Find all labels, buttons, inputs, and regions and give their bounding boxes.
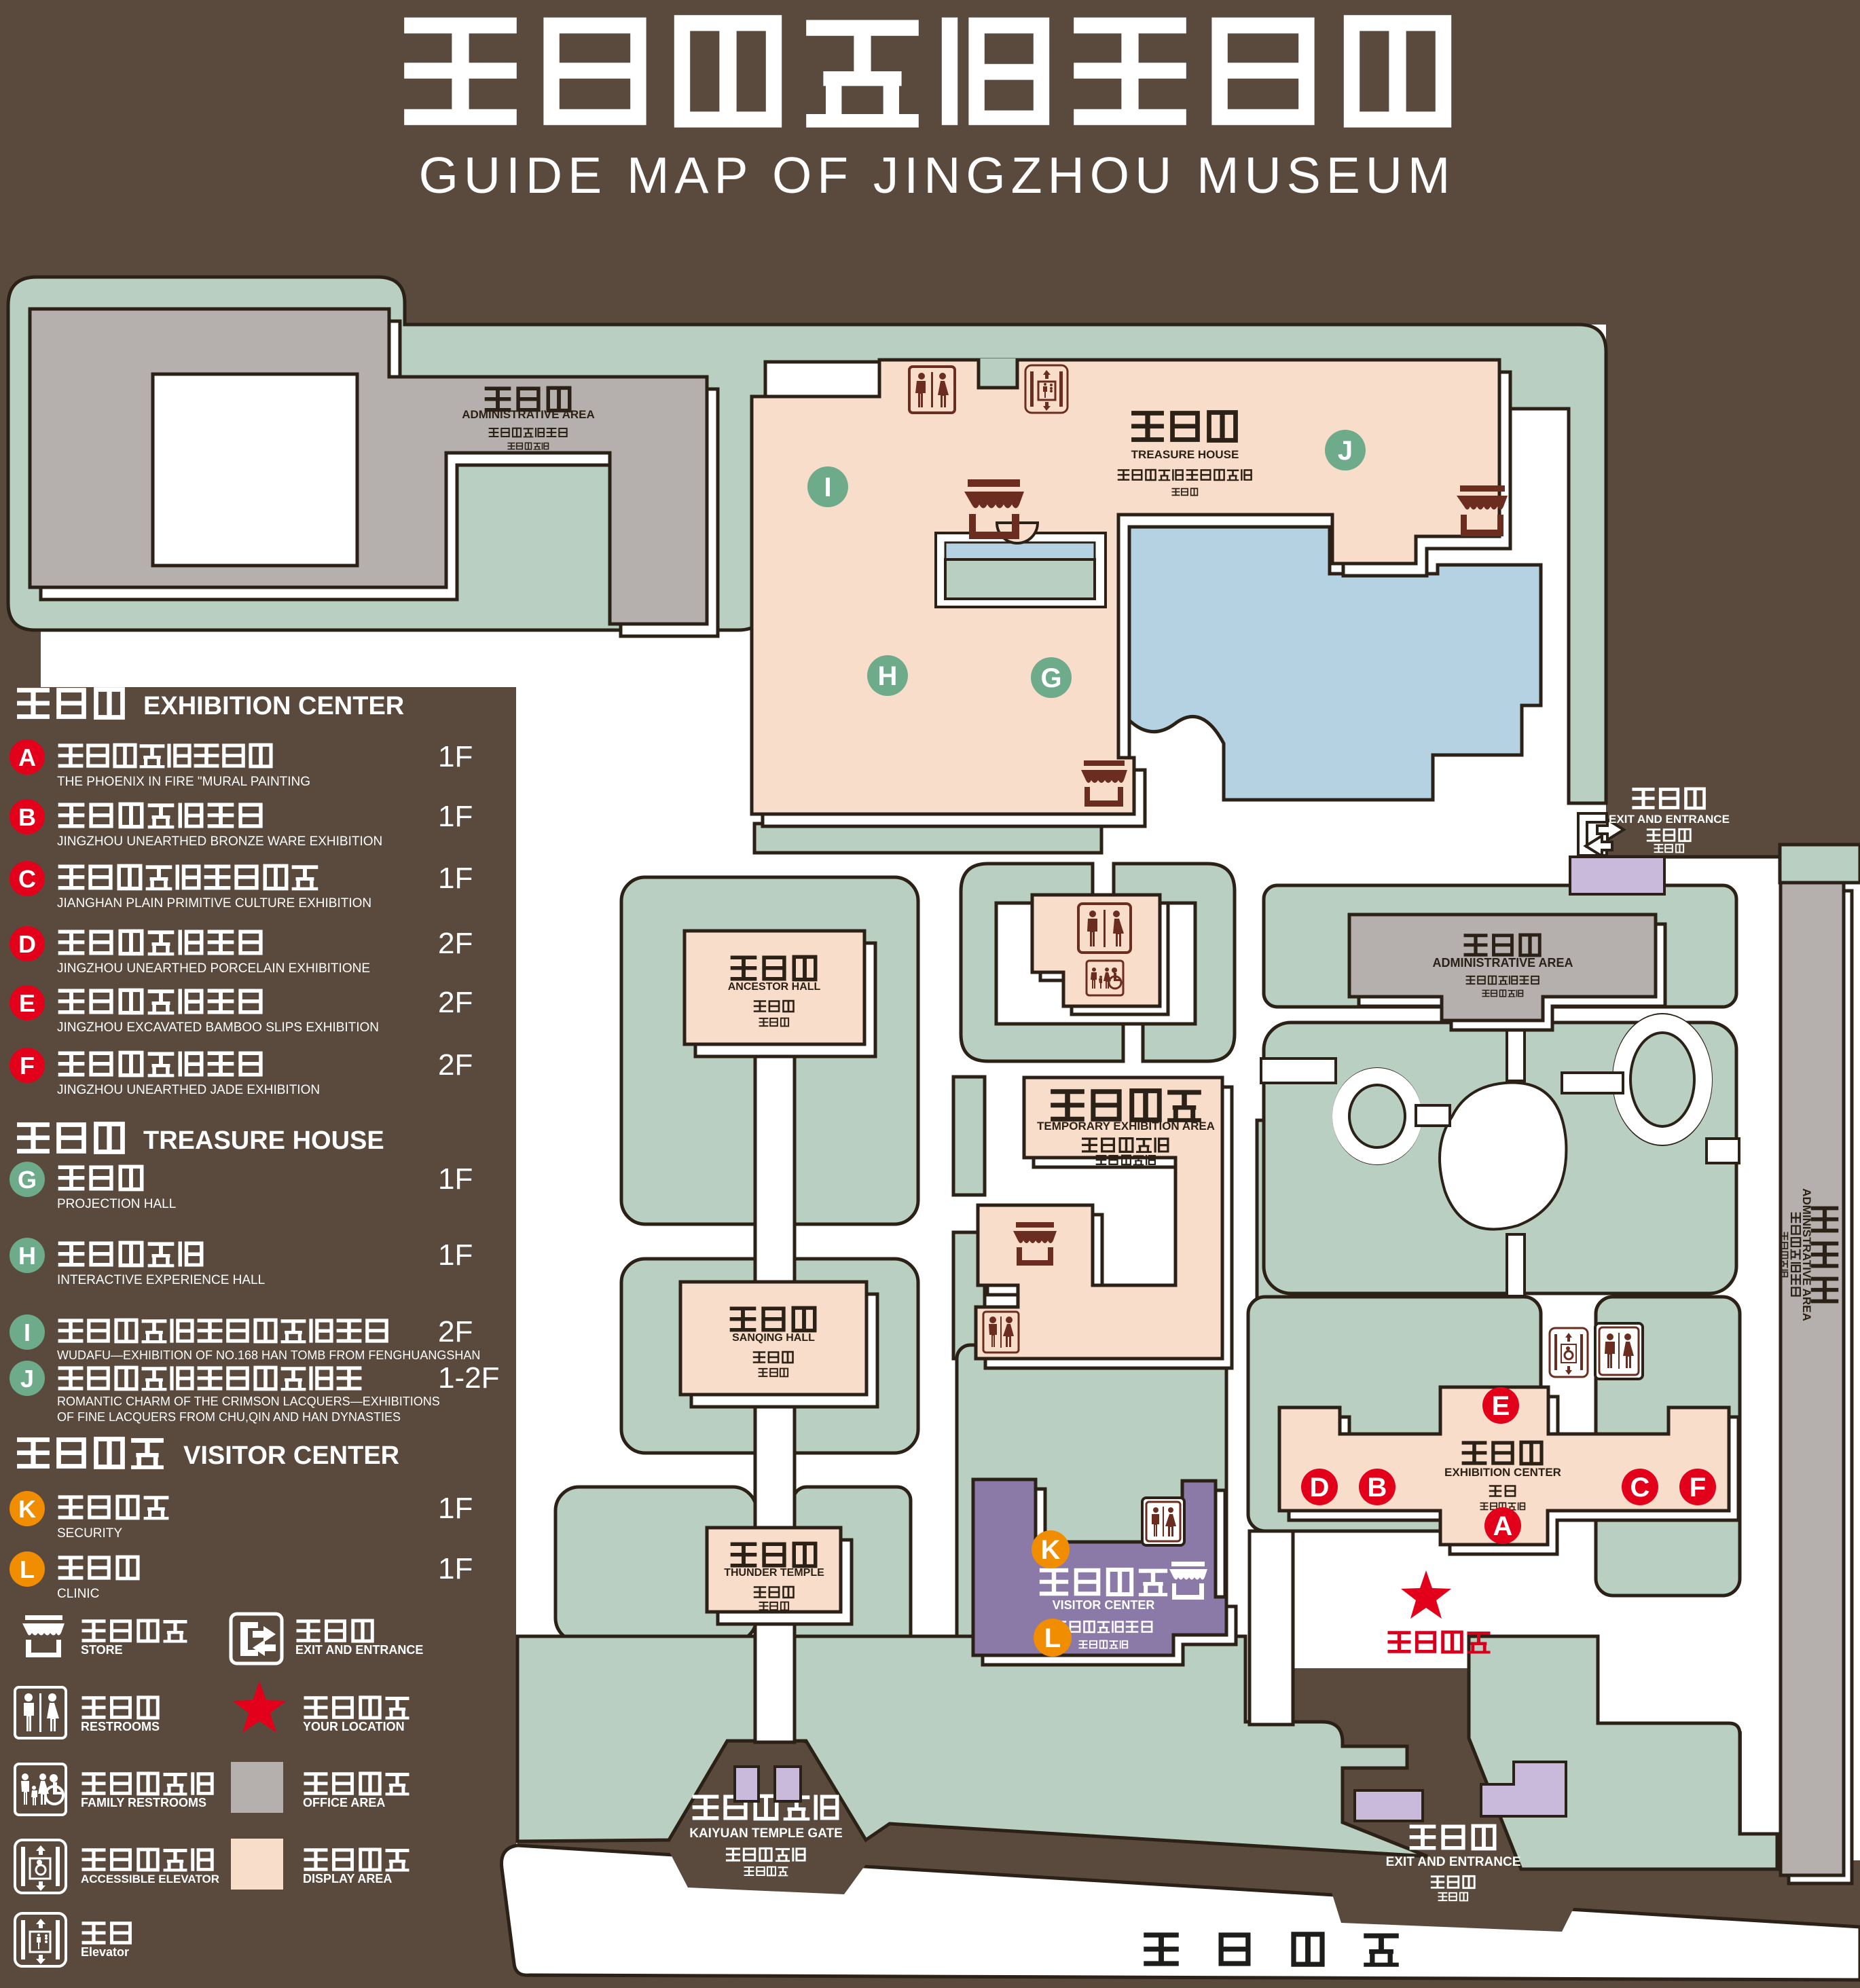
- svg-text:J: J: [20, 1365, 34, 1393]
- svg-text:I: I: [824, 473, 831, 502]
- svg-text:TEMPORARY EXHIBITION AREA: TEMPORARY EXHIBITION AREA: [1037, 1120, 1215, 1133]
- svg-text:ADMINISTRATIVE AREA: ADMINISTRATIVE AREA: [1800, 1188, 1813, 1321]
- svg-text:E: E: [1492, 1391, 1510, 1421]
- svg-text:ANCESTOR HALL: ANCESTOR HALL: [728, 981, 821, 993]
- svg-text:THUNDER TEMPLE: THUNDER TEMPLE: [724, 1567, 824, 1579]
- svg-text:A: A: [18, 743, 36, 771]
- svg-text:VISITOR CENTER: VISITOR CENTER: [183, 1441, 399, 1470]
- svg-text:ADMINISTRATIVE AREA: ADMINISTRATIVE AREA: [1433, 956, 1573, 970]
- svg-text:K: K: [18, 1495, 36, 1523]
- svg-text:EXIT AND ENTRANCE: EXIT AND ENTRANCE: [1609, 813, 1730, 826]
- svg-text:YOUR LOCATION: YOUR LOCATION: [303, 1720, 405, 1733]
- svg-text:1F: 1F: [438, 1238, 473, 1272]
- svg-text:JINGZHOU EXCAVATED BAMBOO SLIP: JINGZHOU EXCAVATED BAMBOO SLIPS EXHIBITI…: [57, 1020, 379, 1035]
- svg-text:CLINIC: CLINIC: [57, 1587, 99, 1601]
- svg-text:JIANGHAN PLAIN PRIMITIVE CULTU: JIANGHAN PLAIN PRIMITIVE CULTURE EXHIBIT…: [57, 896, 371, 910]
- svg-text:1F: 1F: [438, 862, 473, 895]
- svg-text:1F: 1F: [438, 1552, 473, 1585]
- svg-text:G: G: [1040, 663, 1061, 693]
- svg-text:H: H: [18, 1242, 36, 1270]
- svg-text:F: F: [1690, 1473, 1706, 1503]
- svg-text:JINGZHOU UNEARTHED JADE EXHIBI: JINGZHOU UNEARTHED JADE EXHIBITION: [57, 1083, 320, 1097]
- svg-text:B: B: [18, 803, 36, 831]
- svg-text:L: L: [20, 1556, 35, 1583]
- svg-text:OF FINE LACQUERS FROM CHU,QIN: OF FINE LACQUERS FROM CHU,QIN AND HAN DY…: [57, 1410, 401, 1424]
- svg-text:EXIT AND ENTRANCE: EXIT AND ENTRANCE: [295, 1643, 423, 1657]
- svg-text:C: C: [18, 865, 36, 893]
- svg-text:G: G: [18, 1166, 37, 1194]
- svg-text:1F: 1F: [438, 1162, 473, 1196]
- svg-text:Elevator: Elevator: [81, 1945, 129, 1959]
- svg-text:SECURITY: SECURITY: [57, 1526, 122, 1541]
- svg-text:TREASURE HOUSE: TREASURE HOUSE: [1131, 448, 1239, 461]
- svg-text:I: I: [24, 1319, 31, 1346]
- svg-text:ADMINISTRATIVE AREA: ADMINISTRATIVE AREA: [462, 408, 595, 421]
- svg-text:EXIT AND ENTRANCE: EXIT AND ENTRANCE: [1386, 1855, 1521, 1869]
- svg-text:K: K: [1041, 1535, 1061, 1565]
- svg-text:JINGZHOU UNEARTHED PORCELAIN E: JINGZHOU UNEARTHED PORCELAIN EXHIBITIONE: [57, 961, 370, 976]
- svg-text:C: C: [1630, 1473, 1650, 1503]
- svg-text:VISITOR CENTER: VISITOR CENTER: [1053, 1598, 1155, 1612]
- svg-text:SANQING HALL: SANQING HALL: [732, 1332, 815, 1344]
- svg-text:J: J: [1338, 436, 1353, 466]
- svg-text:WUDAFU—EXHIBITION OF NO.168 HA: WUDAFU—EXHIBITION OF NO.168 HAN TOMB FRO…: [57, 1348, 480, 1362]
- svg-text:STORE: STORE: [81, 1643, 123, 1657]
- svg-text:PROJECTION HALL: PROJECTION HALL: [57, 1197, 176, 1211]
- svg-text:1-2F: 1-2F: [438, 1361, 499, 1395]
- svg-text:L: L: [1044, 1623, 1061, 1653]
- svg-text:2F: 2F: [438, 927, 473, 960]
- svg-text:D: D: [1310, 1473, 1330, 1503]
- svg-text:RESTROOMS: RESTROOMS: [81, 1720, 160, 1733]
- svg-text:FAMILY RESTROOMS: FAMILY RESTROOMS: [81, 1796, 206, 1809]
- svg-text:H: H: [878, 661, 898, 691]
- svg-text:D: D: [18, 930, 36, 958]
- svg-text:ACCESSIBLE ELEVATOR: ACCESSIBLE ELEVATOR: [81, 1873, 219, 1885]
- svg-text:OFFICE AREA: OFFICE AREA: [303, 1796, 385, 1809]
- svg-text:KAIYUAN TEMPLE GATE: KAIYUAN TEMPLE GATE: [689, 1826, 843, 1841]
- svg-text:EXHIBITION CENTER: EXHIBITION CENTER: [143, 692, 404, 720]
- svg-text:2F: 2F: [438, 1048, 473, 1082]
- svg-text:EXHIBITION CENTER: EXHIBITION CENTER: [1444, 1466, 1561, 1479]
- svg-text:GUIDE MAP OF JINGZHOU MUSEUM: GUIDE MAP OF JINGZHOU MUSEUM: [419, 147, 1456, 204]
- svg-text:2F: 2F: [438, 986, 473, 1019]
- svg-text:1F: 1F: [438, 800, 473, 833]
- svg-text:E: E: [19, 989, 35, 1017]
- svg-text:A: A: [1493, 1511, 1513, 1541]
- svg-text:B: B: [1368, 1473, 1387, 1503]
- svg-text:1F: 1F: [438, 1492, 473, 1525]
- svg-text:THE PHOENIX IN FIRE "MURAL PAI: THE PHOENIX IN FIRE "MURAL PAINTING: [57, 775, 310, 789]
- svg-text:1F: 1F: [438, 740, 473, 773]
- svg-text:INTERACTIVE EXPERIENCE HALL: INTERACTIVE EXPERIENCE HALL: [57, 1273, 265, 1287]
- svg-text:JINGZHOU UNEARTHED BRONZE WARE: JINGZHOU UNEARTHED BRONZE WARE EXHIBITIO…: [57, 834, 382, 849]
- svg-text:DISPLAY AREA: DISPLAY AREA: [303, 1872, 392, 1885]
- svg-text:F: F: [20, 1052, 35, 1080]
- svg-text:2F: 2F: [438, 1315, 473, 1348]
- svg-text:TREASURE HOUSE: TREASURE HOUSE: [143, 1126, 384, 1155]
- svg-text:ROMANTIC CHARM OF THE CRIMSON: ROMANTIC CHARM OF THE CRIMSON LACQUERS—E…: [57, 1395, 440, 1408]
